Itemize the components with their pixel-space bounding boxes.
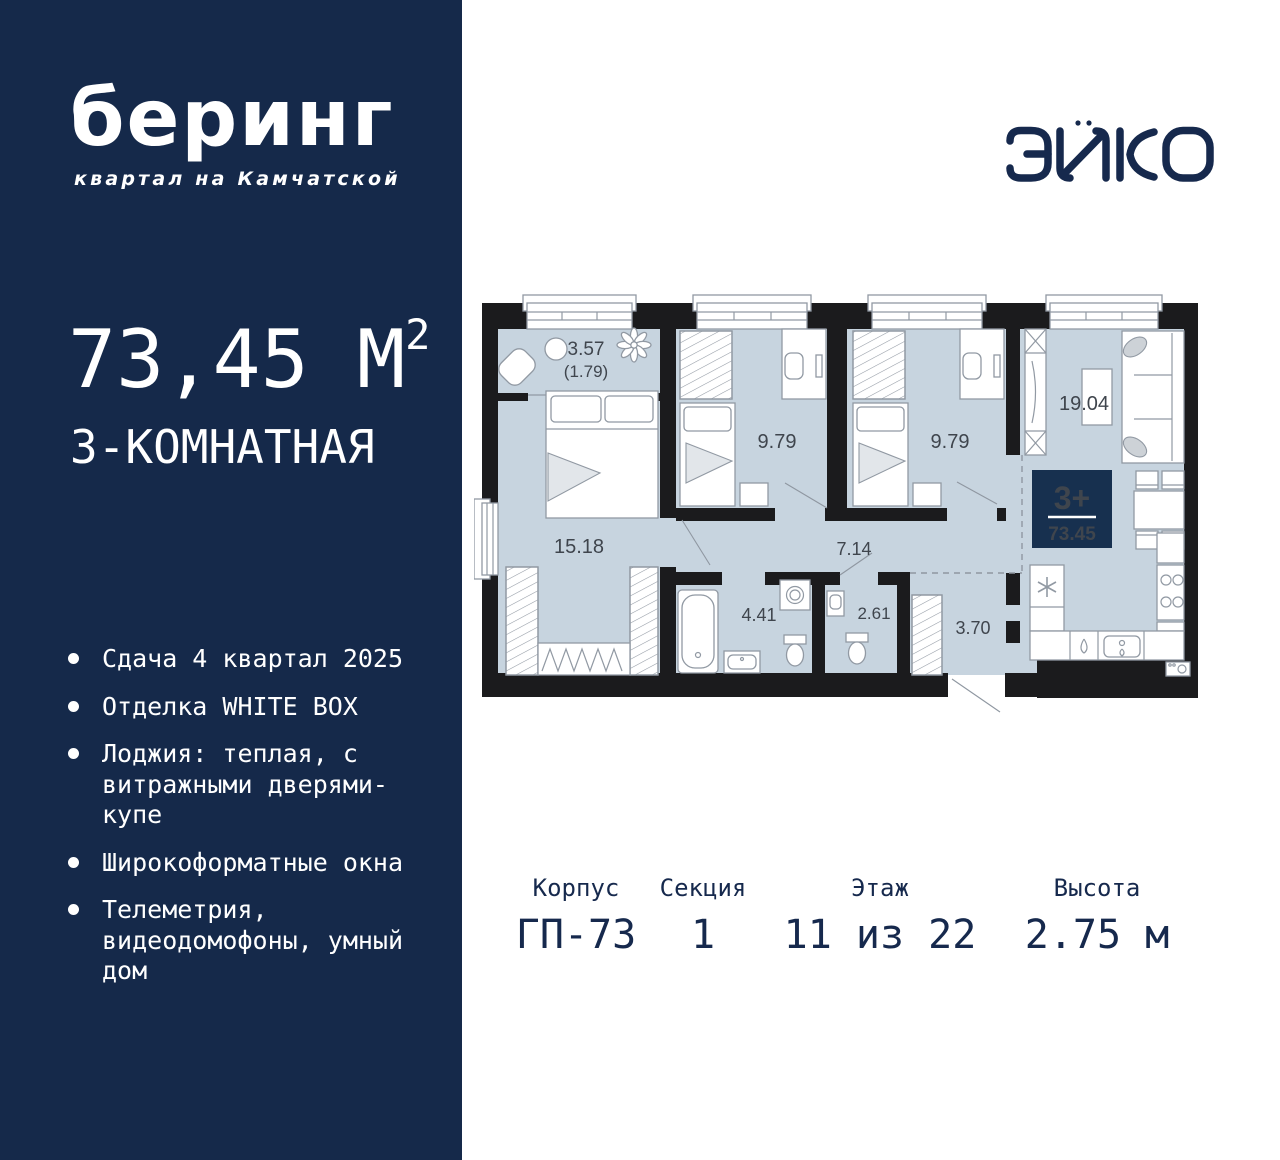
room-label: 3.70	[955, 618, 990, 638]
feature-item: Лоджия: теплая, с витражными дверями-куп…	[68, 739, 416, 831]
clothes-rail	[538, 643, 630, 675]
apartment-area: 73,45 М2	[68, 312, 430, 404]
floor-plan: 3.57 (1.79) 9.79 9.79 19.04 15.18 7.14 4…	[474, 293, 1198, 717]
wardrobe	[912, 595, 942, 675]
window	[523, 295, 636, 329]
badge-area: 73.45	[1048, 524, 1096, 545]
feature-item: Широкоформатные окна	[68, 848, 416, 879]
entry-opening	[948, 675, 1005, 705]
feature-item: Отделка WHITE BOX	[68, 692, 416, 723]
room-label: 9.79	[931, 431, 970, 453]
window	[693, 295, 811, 329]
area-unit: М	[357, 313, 405, 406]
info-section: Секция 1	[630, 874, 776, 958]
loggia-table	[545, 338, 567, 360]
washing-machine	[780, 580, 810, 610]
feature-item: Сдача 4 квартал 2025	[68, 644, 416, 675]
kitchen-sink	[1104, 636, 1140, 657]
desk	[960, 329, 1004, 399]
stove	[1157, 533, 1184, 631]
sofa	[1120, 331, 1184, 463]
room-label: (1.79)	[564, 362, 608, 381]
bullet-dot-icon	[68, 857, 79, 868]
info-label: Секция	[630, 874, 776, 902]
area-value: 73,45	[68, 313, 309, 406]
bullet-dot-icon	[68, 701, 79, 712]
project-logo-subtitle: квартал на Камчатской	[74, 168, 401, 190]
info-label: Этаж	[768, 874, 992, 902]
window	[1046, 295, 1162, 329]
utility-sink	[1166, 662, 1190, 676]
bullet-dot-icon	[68, 653, 79, 664]
double-bed	[546, 391, 658, 518]
info-floor: Этаж 11 из 22	[768, 874, 992, 958]
kitchen-counter	[1030, 631, 1184, 660]
info-value: 11 из 22	[768, 912, 992, 958]
room-label: 3.57	[568, 339, 605, 360]
apartment-type: 3-КОМНАТНАЯ	[70, 420, 375, 474]
info-label: Высота	[1000, 874, 1194, 902]
info-value: 1	[630, 912, 776, 958]
badge-rooms: 3+	[1054, 480, 1090, 516]
room-label: 4.41	[741, 605, 776, 625]
fridge	[1030, 565, 1064, 631]
bullet-dot-icon	[68, 748, 79, 759]
window	[868, 295, 986, 329]
feature-list: Сдача 4 квартал 2025 Отделка WHITE BOX Л…	[68, 644, 416, 1004]
info-value: 2.75 м	[1000, 912, 1194, 958]
wardrobe	[680, 331, 732, 399]
info-height: Высота 2.75 м	[1000, 874, 1194, 958]
room-label: 9.79	[758, 431, 797, 453]
feature-item: Телеметрия, видеодомофоны, умный дом	[68, 895, 416, 987]
window	[474, 499, 498, 579]
bathroom-sink	[724, 651, 760, 673]
room-label: 2.61	[857, 604, 890, 623]
wc-sink	[827, 591, 844, 616]
project-logo: беринг	[70, 80, 395, 158]
room-label: 7.14	[836, 539, 871, 559]
bathtub	[678, 590, 718, 673]
apartment-badge: 3+ 73.45	[1032, 470, 1112, 548]
flower-icon	[617, 328, 651, 362]
wardrobe	[853, 331, 905, 399]
room-label: 19.04	[1059, 393, 1109, 415]
sidebar: беринг квартал на Камчатской 73,45 М2 3-…	[0, 0, 462, 1160]
bullet-dot-icon	[68, 904, 79, 915]
room-label: 15.18	[554, 536, 604, 558]
area-sup: 2	[405, 310, 430, 359]
apartment-card: беринг квартал на Камчатской 73,45 М2 3-…	[0, 0, 1280, 1160]
shelving-unit	[1025, 329, 1046, 455]
enko-logo: ЭНКО	[1002, 118, 1214, 182]
desk	[782, 329, 826, 399]
